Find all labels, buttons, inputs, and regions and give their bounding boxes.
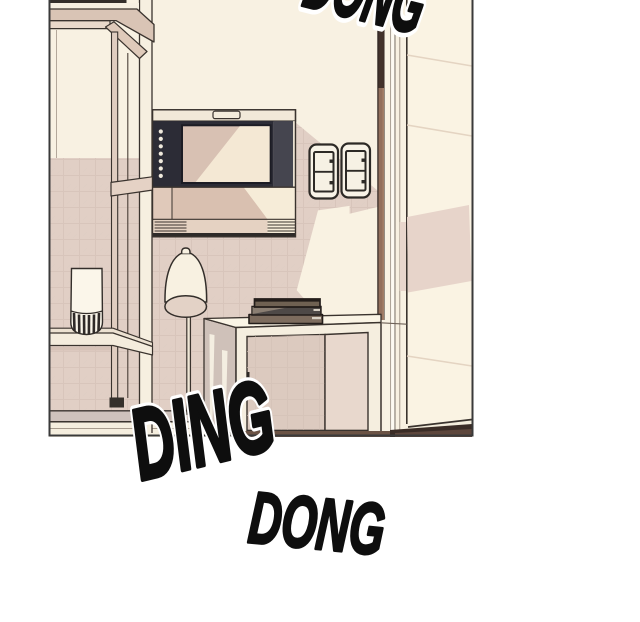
svg-text:DONG: DONG bbox=[246, 476, 389, 570]
